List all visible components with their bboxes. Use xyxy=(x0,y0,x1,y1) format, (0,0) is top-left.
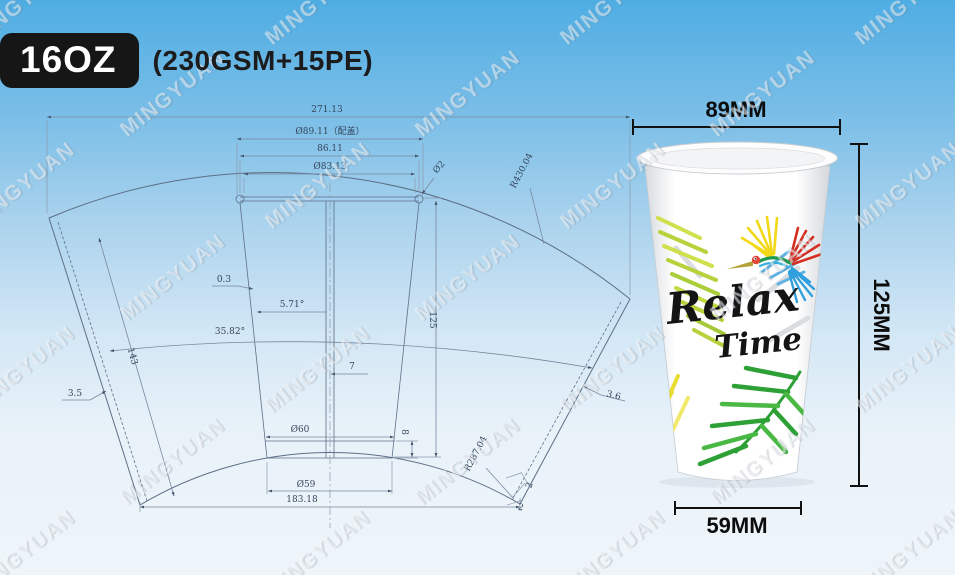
dim-sector-angle: 35.82° xyxy=(215,327,245,337)
dim-inner-radius: R287.04 xyxy=(463,435,490,474)
right-seam-dashed xyxy=(512,302,621,500)
dim-seam-right: 3.6 xyxy=(605,389,622,402)
dim-rim-with-lid: Ø89.11（配盖） xyxy=(295,125,364,137)
dim-center-half: 7 xyxy=(349,362,355,372)
dim-bottom-outer: Ø60 xyxy=(291,424,310,435)
cup-dim-bottom: 59MM xyxy=(706,513,767,538)
bird-eye xyxy=(755,258,756,259)
cup-dim-height: 125MM xyxy=(869,278,894,351)
size-badge: 16OZ xyxy=(0,33,139,88)
product-spec-image: MINGYUANMINGYUANMINGYUANMINGYUANMINGYUAN… xyxy=(0,0,955,575)
dim-rim-inner: Ø83.13 xyxy=(313,161,346,172)
size-label: 16OZ xyxy=(20,39,117,80)
cup-dim-top: 89MM xyxy=(705,97,766,122)
dim-half-angle: 5.71° xyxy=(280,300,305,310)
cup-wall-panel xyxy=(236,183,423,528)
dim-band-height: 8 xyxy=(399,429,409,435)
dim-rim-outer: 86.11 xyxy=(317,144,343,154)
cup-photo: Relax Time xyxy=(633,97,894,538)
dim-outer-radius: R430.04 xyxy=(509,152,536,191)
dim-bottom-inner: Ø59 xyxy=(297,479,316,490)
dim-bottom-chord: 183.18 xyxy=(286,495,318,505)
dim-overall-width: 271.13 xyxy=(311,105,343,115)
rim-roll-left xyxy=(236,195,244,203)
dim-corner-b: 2 xyxy=(516,502,524,513)
spec-label: (230GSM+15PE) xyxy=(153,45,374,77)
rim-roll-right xyxy=(415,195,423,203)
fan-blank-drawing: 271.13 Ø89.11（配盖） 86.11 Ø83.13 143 0.3 5… xyxy=(47,105,630,528)
header: 16OZ (230GSM+15PE) xyxy=(0,33,373,88)
dim-gap: 0.3 xyxy=(217,275,232,285)
dim-rim-roll: Ø2 xyxy=(431,159,448,176)
dimension-lines xyxy=(47,117,630,507)
dim-seam-left: 3.5 xyxy=(68,389,83,399)
fan-blank-outline xyxy=(49,173,630,505)
cup-rim-inner xyxy=(651,148,825,169)
bird-head xyxy=(752,256,760,264)
dim-wall-height: 125 xyxy=(427,311,437,328)
dim-corner-a: 2 xyxy=(524,481,535,490)
dim-edge-length: 143 xyxy=(125,347,139,367)
